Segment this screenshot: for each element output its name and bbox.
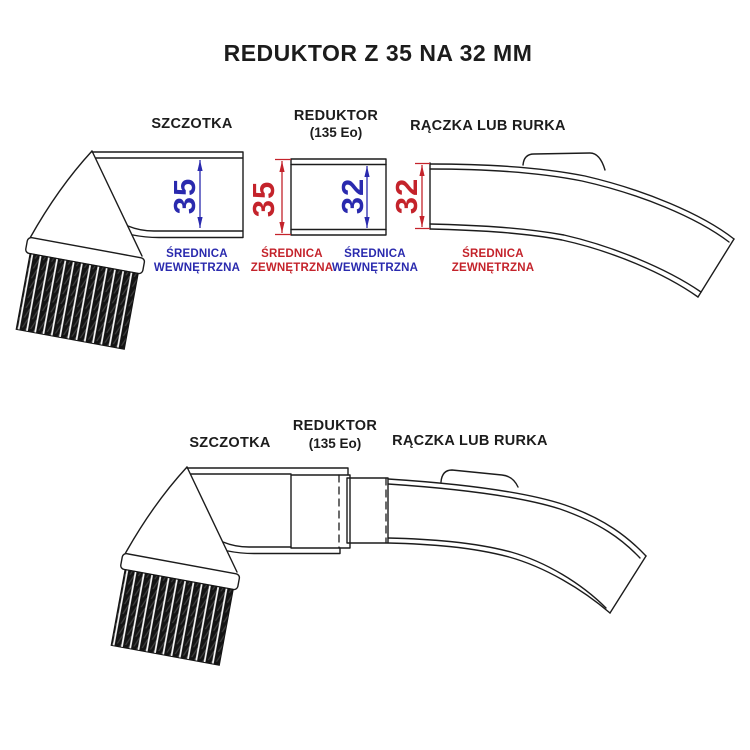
reducer-joint-assembled xyxy=(291,475,388,548)
label-reduktor-sub-bottom: (135 Eo) xyxy=(309,436,362,451)
dim-label-reduktor-outer-line1: ŚREDNICA xyxy=(261,247,323,260)
brush-head xyxy=(106,467,240,666)
label-raczka-bottom: RĄCZKA LUB RURKA xyxy=(392,433,548,449)
dim-label-reduktor-inner-line1: ŚREDNICA xyxy=(344,247,406,260)
handle-drawing-assembled xyxy=(388,470,646,613)
brush-head xyxy=(11,151,145,350)
page-title: REDUKTOR Z 35 NA 32 MM xyxy=(224,40,533,66)
assembled-view: SZCZOTKA REDUKTOR (135 Eo) RĄCZKA LUB RU… xyxy=(106,418,646,666)
dim-value-raczka: 32 xyxy=(389,178,424,214)
label-reduktor-bottom: REDUKTOR xyxy=(293,418,378,434)
label-raczka-top: RĄCZKA LUB RURKA xyxy=(410,118,566,134)
label-reduktor-sub-top: (135 Eo) xyxy=(310,125,363,140)
dim-value-reduktor-inner: 32 xyxy=(335,178,370,214)
dim-label-reduktor-inner-line2: WEWNĘTRZNA xyxy=(332,262,418,274)
dim-value-reduktor-outer: 35 xyxy=(246,181,281,217)
dim-label-raczka-line1: ŚREDNICA xyxy=(462,247,524,260)
dim-label-szczotka-line2: WEWNĘTRZNA xyxy=(154,262,240,274)
technical-diagram-page: REDUKTOR Z 35 NA 32 MM SZCZOTKA REDUKTOR… xyxy=(0,0,750,750)
exploded-view: SZCZOTKA REDUKTOR (135 Eo) RĄCZKA LUB RU… xyxy=(11,108,734,350)
label-reduktor-top: REDUKTOR xyxy=(294,108,379,124)
label-szczotka-bottom: SZCZOTKA xyxy=(189,435,271,451)
handle-drawing-exploded xyxy=(430,153,734,297)
dim-label-reduktor-outer-line2: ZEWNĘTRZNA xyxy=(251,262,334,274)
brush-drawing-assembled xyxy=(106,467,348,666)
diagram-canvas: REDUKTOR Z 35 NA 32 MM SZCZOTKA REDUKTOR… xyxy=(0,0,750,750)
dim-szczotka-inner: 35 ŚREDNICA WEWNĘTRZNA xyxy=(154,160,240,274)
dim-raczka-outer: 32 ŚREDNICA ZEWNĘTRZNA xyxy=(389,164,534,275)
dim-reduktor-outer: 35 ŚREDNICA ZEWNĘTRZNA xyxy=(246,160,333,275)
dim-value-szczotka: 35 xyxy=(167,178,202,214)
dim-label-raczka-line2: ZEWNĘTRZNA xyxy=(452,262,535,274)
label-szczotka-top: SZCZOTKA xyxy=(151,116,233,132)
handle-clip-bump xyxy=(523,153,605,170)
dim-label-szczotka-line1: ŚREDNICA xyxy=(166,247,228,260)
